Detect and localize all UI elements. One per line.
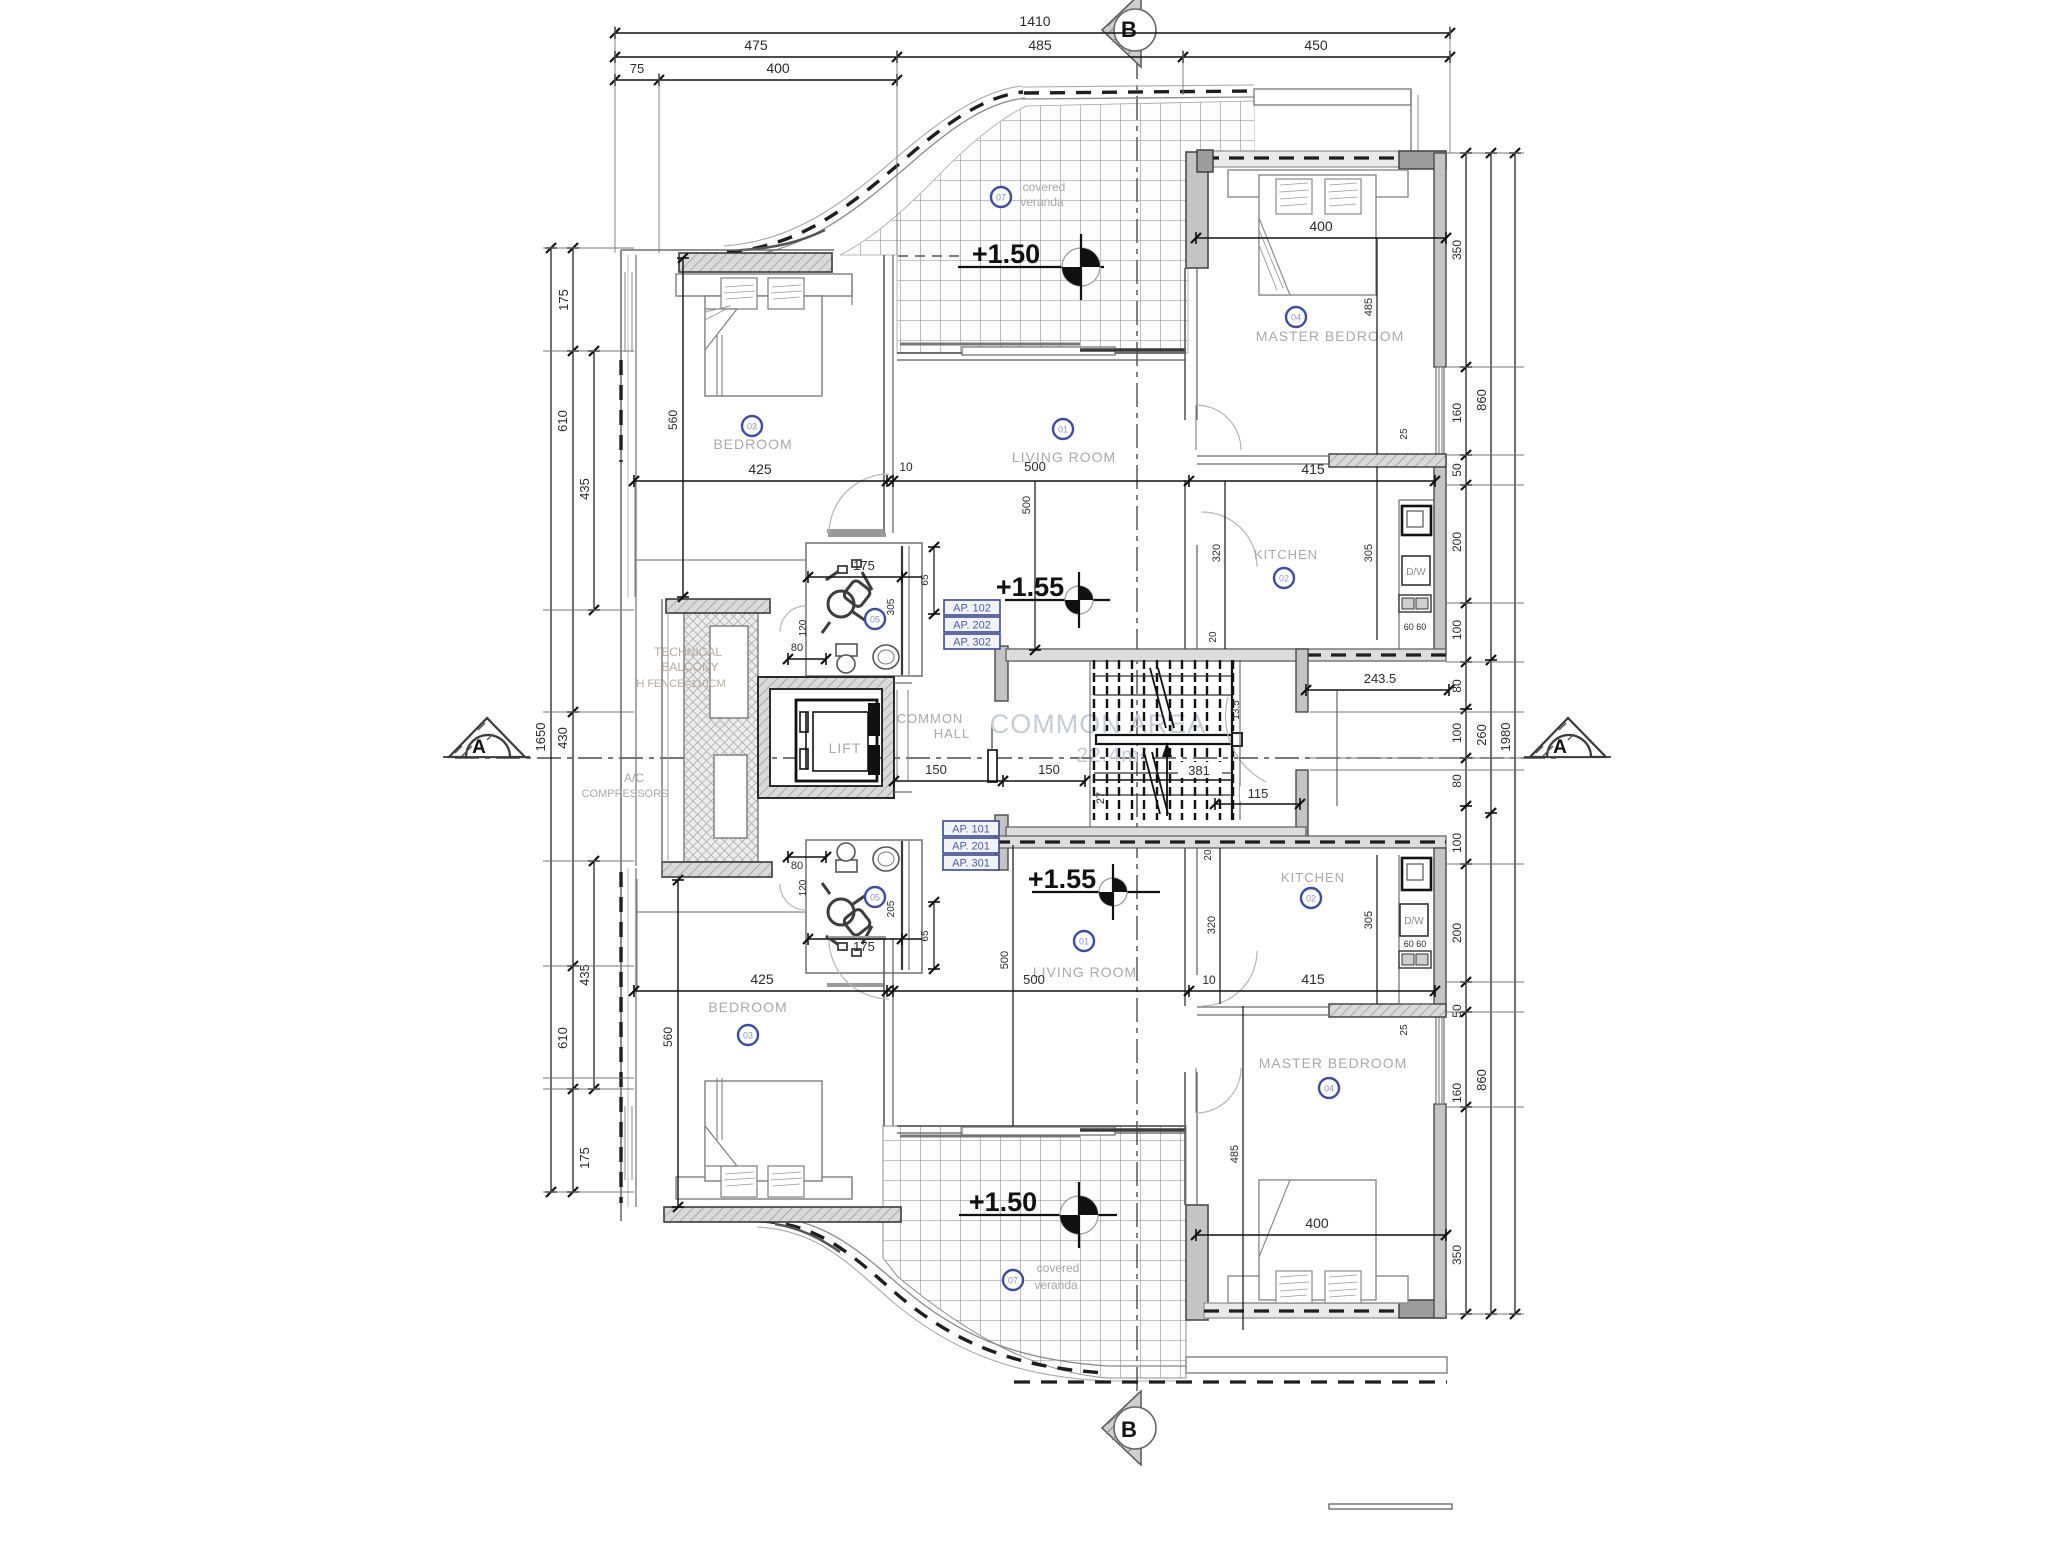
svg-text:TECHNICAL: TECHNICAL: [654, 645, 722, 659]
svg-text:01: 01: [1058, 425, 1068, 435]
svg-text:10: 10: [1202, 973, 1216, 987]
svg-text:100: 100: [1450, 723, 1464, 743]
svg-text:covered: covered: [1023, 180, 1066, 194]
svg-text:veranda: veranda: [1020, 195, 1064, 209]
svg-text:65: 65: [920, 574, 931, 586]
svg-text:AP. 101: AP. 101: [952, 824, 990, 836]
svg-text:175: 175: [577, 1147, 592, 1169]
svg-text:350: 350: [1450, 240, 1464, 260]
svg-text:13.5: 13.5: [1231, 700, 1242, 720]
svg-text:05: 05: [870, 893, 880, 903]
svg-text:320: 320: [1211, 544, 1223, 562]
svg-text:07: 07: [1008, 1276, 1018, 1286]
svg-text:860: 860: [1474, 1069, 1489, 1091]
svg-text:KITCHEN: KITCHEN: [1281, 870, 1345, 885]
svg-text:200: 200: [1450, 532, 1464, 552]
svg-text:160: 160: [1450, 1083, 1464, 1103]
svg-text:425: 425: [748, 461, 772, 477]
svg-text:500: 500: [1024, 459, 1046, 474]
svg-text:115: 115: [1248, 786, 1269, 801]
svg-text:05: 05: [870, 615, 880, 625]
svg-text:25: 25: [1399, 1024, 1410, 1036]
svg-text:AP. 102: AP. 102: [953, 603, 991, 615]
svg-text:500: 500: [1021, 496, 1033, 514]
svg-text:HALL: HALL: [934, 726, 971, 741]
svg-text:MASTER BEDROOM: MASTER BEDROOM: [1256, 328, 1405, 344]
svg-text:175: 175: [853, 939, 875, 954]
svg-text:1650: 1650: [533, 723, 548, 752]
svg-text:860: 860: [1474, 389, 1489, 411]
svg-text:100: 100: [1450, 833, 1464, 853]
svg-text:415: 415: [1301, 971, 1325, 987]
svg-text:04: 04: [1324, 1084, 1334, 1094]
svg-text:435: 435: [577, 964, 592, 986]
svg-text:435: 435: [577, 478, 592, 500]
svg-text:D/W: D/W: [1406, 567, 1426, 578]
svg-text:B: B: [1121, 1417, 1137, 1442]
svg-text:400: 400: [1305, 1215, 1329, 1231]
svg-text:1980: 1980: [1498, 723, 1513, 752]
svg-text:AP. 202: AP. 202: [953, 620, 991, 632]
svg-text:100: 100: [1450, 620, 1464, 640]
svg-text:04: 04: [1291, 313, 1301, 323]
svg-text:485: 485: [1363, 298, 1375, 316]
svg-text:560: 560: [666, 410, 680, 430]
svg-text:500: 500: [999, 951, 1011, 969]
svg-text:20: 20: [1203, 849, 1214, 861]
svg-text:A/C: A/C: [624, 771, 644, 785]
svg-text:+1.50: +1.50: [972, 239, 1040, 269]
svg-text:03: 03: [747, 422, 757, 432]
svg-text:80: 80: [791, 642, 803, 654]
svg-text:H FENCE=110CM: H FENCE=110CM: [636, 678, 725, 690]
svg-text:01: 01: [1079, 937, 1089, 947]
svg-text:+1.50: +1.50: [969, 1187, 1037, 1217]
svg-text:LIVING ROOM: LIVING ROOM: [1033, 964, 1137, 980]
svg-text:27: 27: [1095, 792, 1107, 804]
svg-text:A: A: [1553, 737, 1567, 758]
svg-text:475: 475: [744, 37, 768, 53]
svg-text:AP. 302: AP. 302: [953, 637, 991, 649]
svg-text:305: 305: [1363, 911, 1375, 929]
svg-text:205: 205: [886, 900, 897, 917]
svg-text:80: 80: [1450, 774, 1464, 788]
svg-text:A: A: [472, 737, 486, 758]
svg-text:200: 200: [1450, 923, 1464, 943]
svg-text:LIFT: LIFT: [829, 740, 862, 756]
svg-text:150: 150: [1038, 762, 1060, 777]
svg-text:260: 260: [1474, 724, 1489, 746]
svg-text:COMMON: COMMON: [897, 711, 964, 726]
svg-text:305: 305: [886, 598, 897, 615]
svg-text:400: 400: [766, 60, 790, 76]
svg-text:160: 160: [1450, 403, 1464, 423]
svg-text:KITCHEN: KITCHEN: [1254, 547, 1318, 562]
svg-text:02: 02: [1306, 894, 1316, 904]
svg-text:305: 305: [1363, 544, 1375, 562]
svg-text:65: 65: [920, 930, 931, 942]
svg-text:veranda: veranda: [1034, 1278, 1078, 1292]
svg-text:10: 10: [899, 460, 913, 474]
svg-text:BEDROOM: BEDROOM: [708, 999, 787, 1015]
svg-text:AP. 201: AP. 201: [952, 841, 990, 853]
svg-text:covered: covered: [1037, 1261, 1080, 1275]
svg-text:60 60: 60 60: [1404, 939, 1427, 949]
svg-text:450: 450: [1304, 37, 1328, 53]
svg-text:22.4m²: 22.4m²: [1076, 744, 1147, 767]
svg-text:02: 02: [1279, 574, 1289, 584]
svg-text:D/W: D/W: [1404, 916, 1424, 927]
svg-text:150: 150: [925, 762, 947, 777]
svg-text:120: 120: [798, 879, 809, 896]
svg-text:610: 610: [555, 410, 570, 432]
svg-text:320: 320: [1206, 916, 1218, 934]
svg-text:560: 560: [661, 1027, 675, 1047]
svg-text:+1.55: +1.55: [1028, 864, 1096, 894]
svg-text:430: 430: [555, 727, 570, 749]
svg-text:03: 03: [743, 1031, 753, 1041]
svg-text:50: 50: [1450, 1004, 1464, 1018]
svg-text:MASTER BEDROOM: MASTER BEDROOM: [1259, 1055, 1408, 1071]
svg-text:485: 485: [1229, 1145, 1241, 1163]
svg-text:75: 75: [630, 61, 644, 76]
svg-text:25: 25: [1399, 428, 1410, 440]
svg-text:485: 485: [1028, 37, 1052, 53]
svg-text:175: 175: [556, 289, 571, 311]
svg-text:415: 415: [1301, 461, 1325, 477]
svg-text:AP. 301: AP. 301: [952, 858, 990, 870]
svg-text:50: 50: [1450, 463, 1464, 477]
svg-text:07: 07: [996, 193, 1006, 203]
svg-text:243.5: 243.5: [1364, 671, 1397, 686]
svg-text:80: 80: [791, 860, 803, 872]
svg-text:381: 381: [1188, 763, 1210, 778]
svg-text:400: 400: [1309, 218, 1333, 234]
svg-text:BEDROOM: BEDROOM: [713, 436, 792, 452]
svg-text:175: 175: [853, 558, 875, 573]
svg-text:500: 500: [1023, 972, 1045, 987]
svg-text:350: 350: [1450, 1245, 1464, 1265]
svg-text:B: B: [1121, 17, 1137, 42]
svg-text:120: 120: [798, 619, 809, 636]
svg-text:COMPRESSORS: COMPRESSORS: [582, 788, 669, 800]
svg-text:425: 425: [750, 971, 774, 987]
svg-text:BALCONY: BALCONY: [661, 660, 718, 674]
svg-text:610: 610: [555, 1027, 570, 1049]
svg-text:60 60: 60 60: [1404, 622, 1427, 632]
svg-text:1410: 1410: [1019, 13, 1050, 29]
svg-text:+1.55: +1.55: [996, 572, 1064, 602]
svg-text:20: 20: [1208, 631, 1219, 643]
